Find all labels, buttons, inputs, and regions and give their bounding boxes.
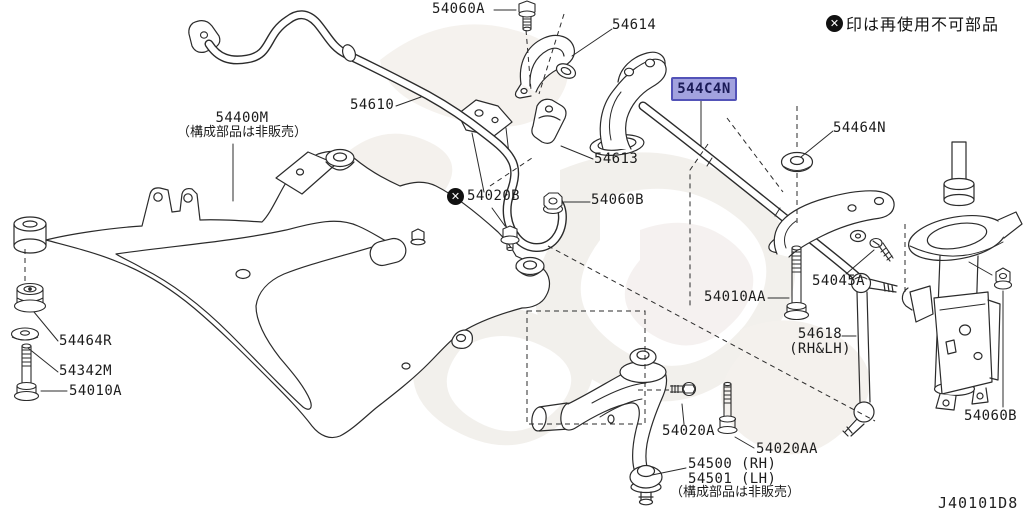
part-label-54020B[interactable]: ✕ 54020B <box>447 188 520 205</box>
part-number-54020B: 54020B <box>467 189 520 204</box>
part-side-54618: (RH&LH) <box>787 342 853 357</box>
part-label-54464N[interactable]: 54464N <box>833 121 886 136</box>
bolt-54010A-drawing <box>15 344 39 401</box>
part-label-54060A[interactable]: 54060A <box>432 2 485 17</box>
part-label-54020AA[interactable]: 54020AA <box>756 442 818 457</box>
part-label-54342M[interactable]: 54342M <box>59 364 112 379</box>
washer-54464N-drawing <box>782 153 813 172</box>
part-note-54500: （構成部品は非販売） <box>670 486 800 500</box>
non-reusable-icon: ✕ <box>447 188 464 205</box>
insulator-54464R-drawing <box>15 284 46 313</box>
bushing-nut-54060B-drawing <box>544 193 563 214</box>
part-number-54618: 54618 <box>787 327 853 342</box>
part-label-54010AA[interactable]: 54010AA <box>704 290 766 305</box>
bolt-54060A-drawing <box>519 1 535 31</box>
part-label-54060B-strut[interactable]: 54060B <box>964 409 1017 424</box>
part-number-54400M: 54400M <box>177 111 307 126</box>
front-suspension-parts-diagram: 54060A 54614 ✕ 印は再使用不可部品 544C4N 54610 54… <box>0 0 1024 511</box>
part-label-54618[interactable]: 54618 (RH&LH) <box>787 327 853 356</box>
part-label-54614[interactable]: 54614 <box>612 18 656 33</box>
non-reusable-note-text: 印は再使用不可部品 <box>846 11 999 35</box>
part-label-544C4N[interactable]: 544C4N <box>671 77 737 101</box>
part-note-54400M: （構成部品は非販売） <box>177 126 307 140</box>
non-reusable-note: ✕ 印は再使用不可部品 <box>826 11 999 35</box>
part-label-54010A[interactable]: 54010A <box>69 384 122 399</box>
part-number-54500: 54500 (RH) <box>688 457 800 472</box>
diagram-code: J40101D8 <box>938 494 1018 511</box>
part-label-54464R[interactable]: 54464R <box>59 334 112 349</box>
washer-54342M-drawing <box>12 328 39 340</box>
stabilizer-bracket-center-drawing <box>589 52 666 158</box>
clamp-54613-drawing <box>532 99 566 143</box>
part-label-54610[interactable]: 54610 <box>350 98 394 113</box>
diagram-line-art <box>0 0 1024 511</box>
non-reusable-icon: ✕ <box>826 15 843 32</box>
part-label-54020A[interactable]: 54020A <box>662 424 715 439</box>
nut-54060B-strut-drawing <box>995 268 1012 289</box>
part-label-54500-54501[interactable]: 54500 (RH) 54501 (LH) （構成部品は非販売） <box>670 457 800 500</box>
part-label-54045A[interactable]: 54045A <box>812 274 865 289</box>
screw-54045A-drawing <box>870 239 893 262</box>
part-label-54060B[interactable]: 54060B <box>591 193 644 208</box>
part-label-54613[interactable]: 54613 <box>594 152 638 167</box>
part-label-54400M[interactable]: 54400M （構成部品は非販売） <box>177 111 307 139</box>
